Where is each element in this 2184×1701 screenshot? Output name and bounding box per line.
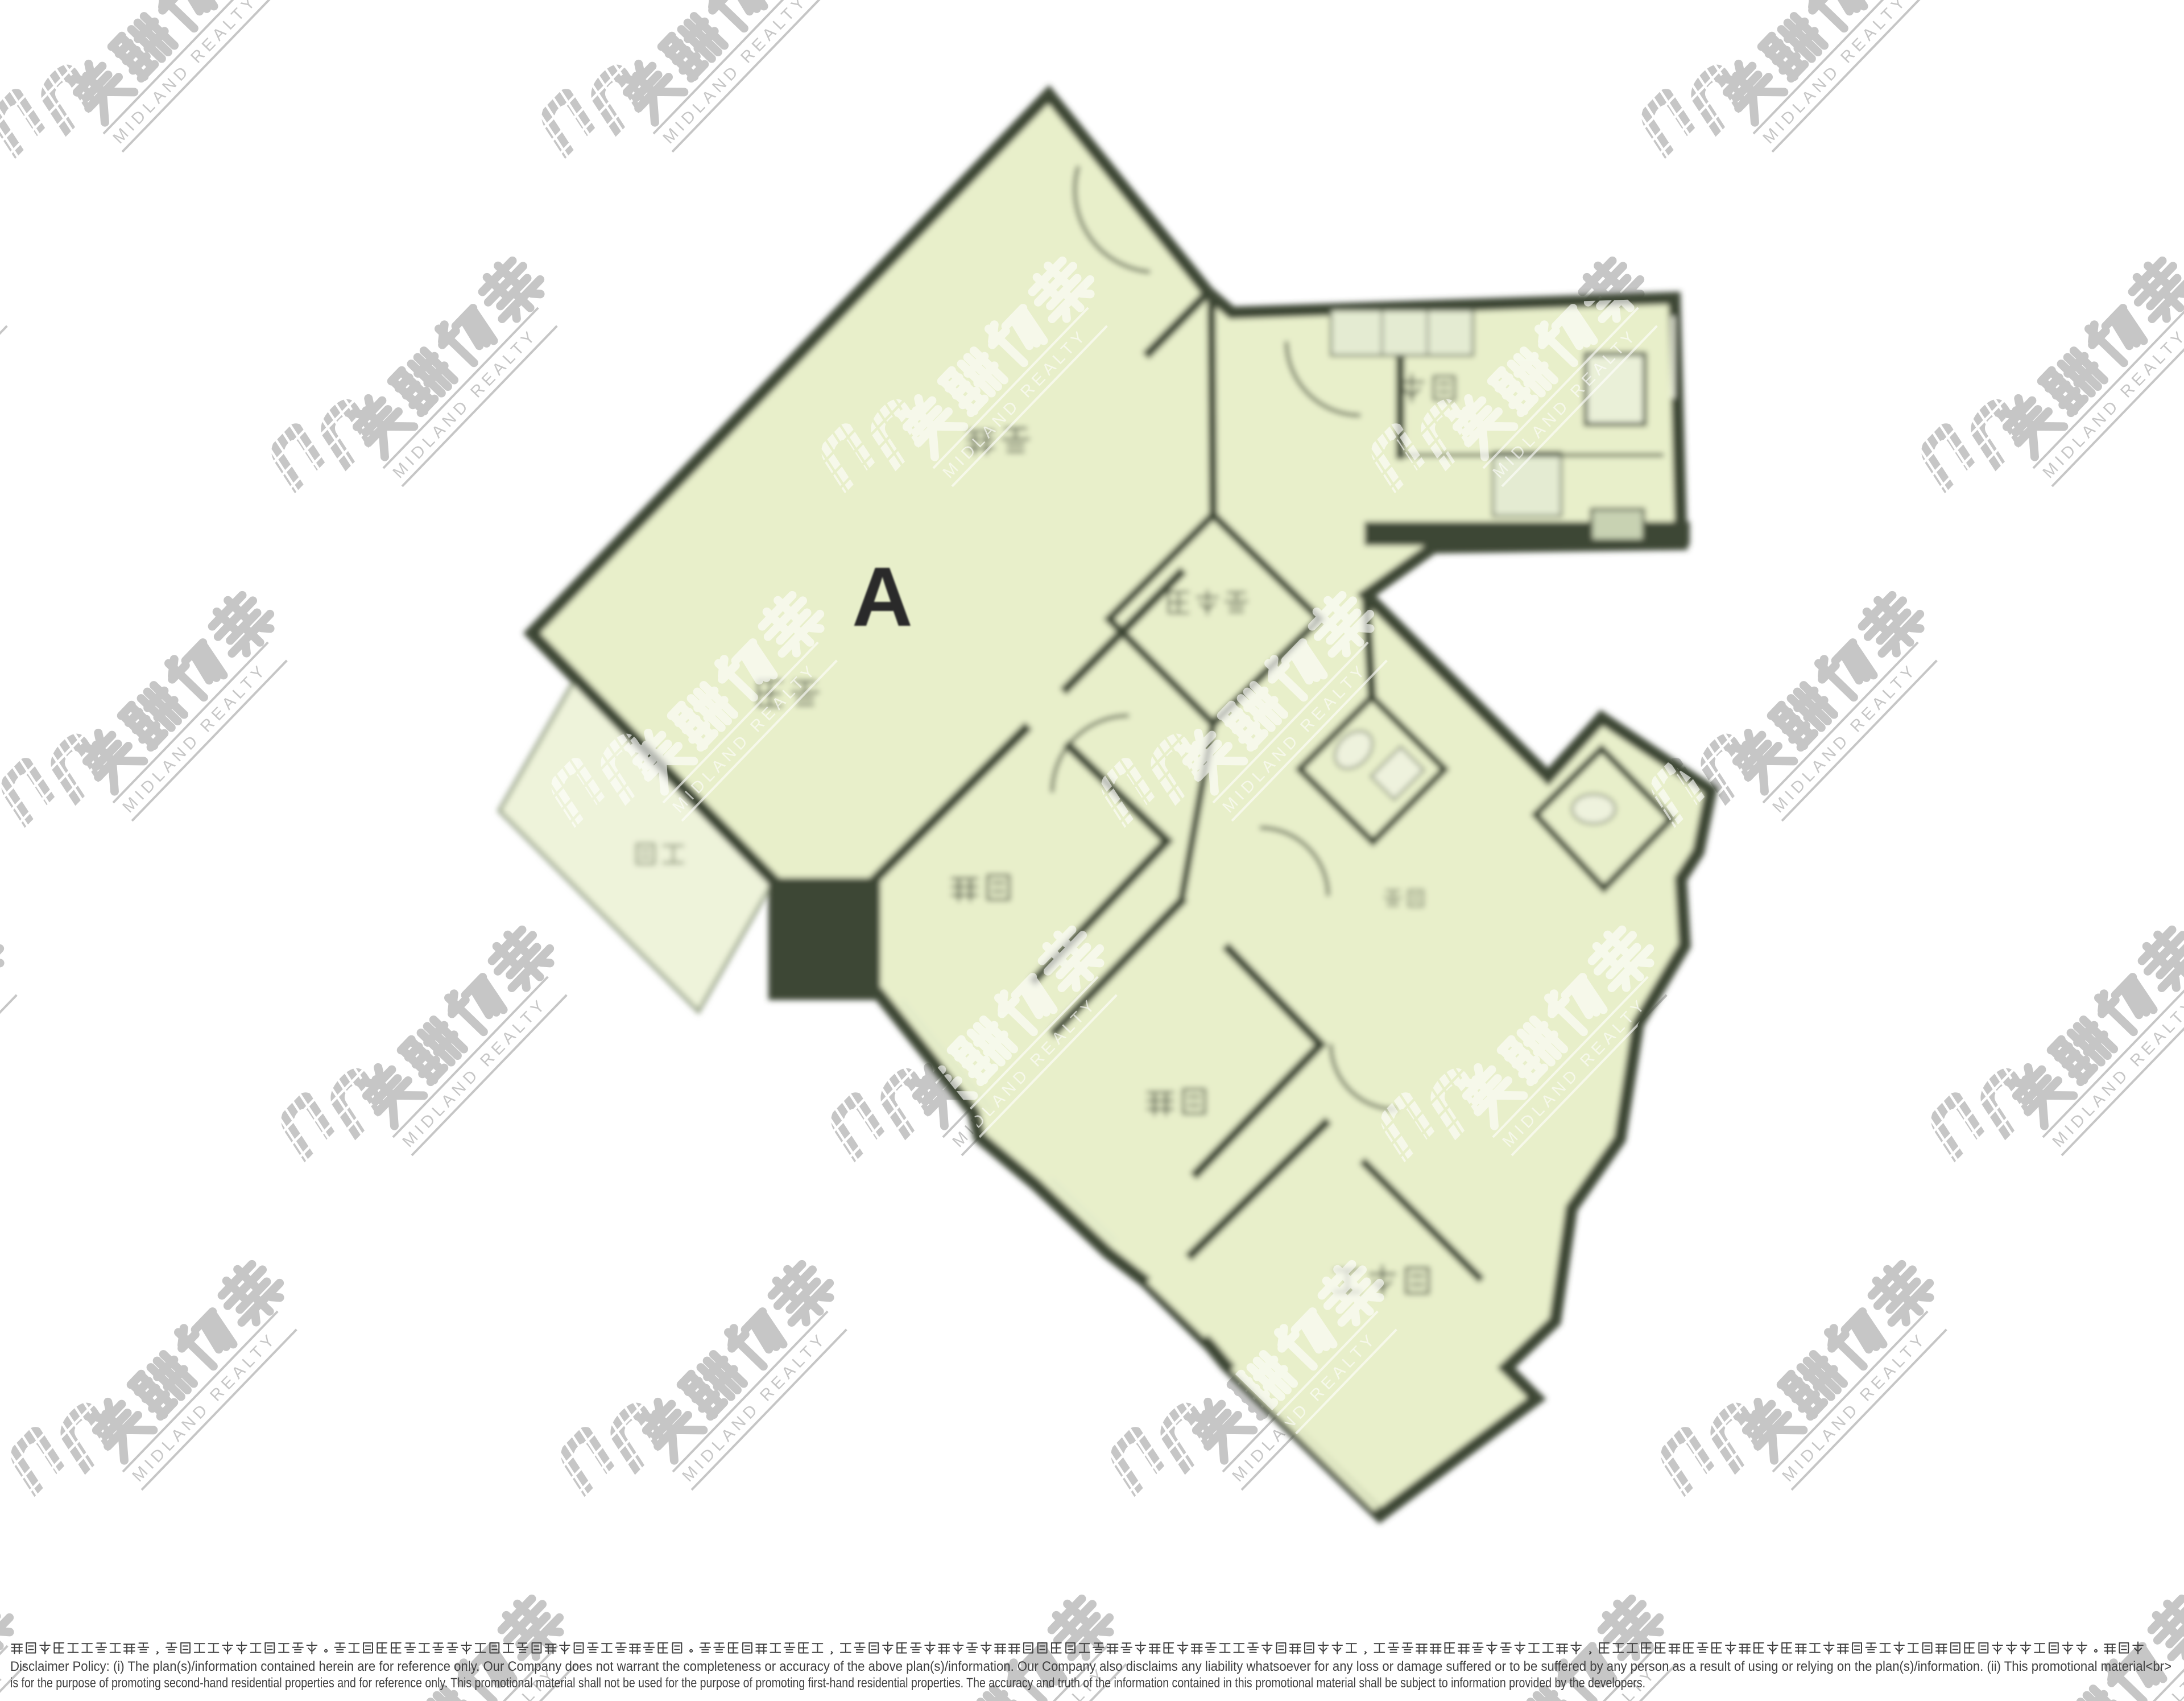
svg-text:A: A [852, 550, 913, 644]
svg-text:is for the purpose of promotin: is for the purpose of promoting second-h… [10, 1675, 1645, 1691]
svg-text:Disclaimer Policy: (i) The pla: Disclaimer Policy: (i) The plan(s)/infor… [10, 1659, 2171, 1674]
